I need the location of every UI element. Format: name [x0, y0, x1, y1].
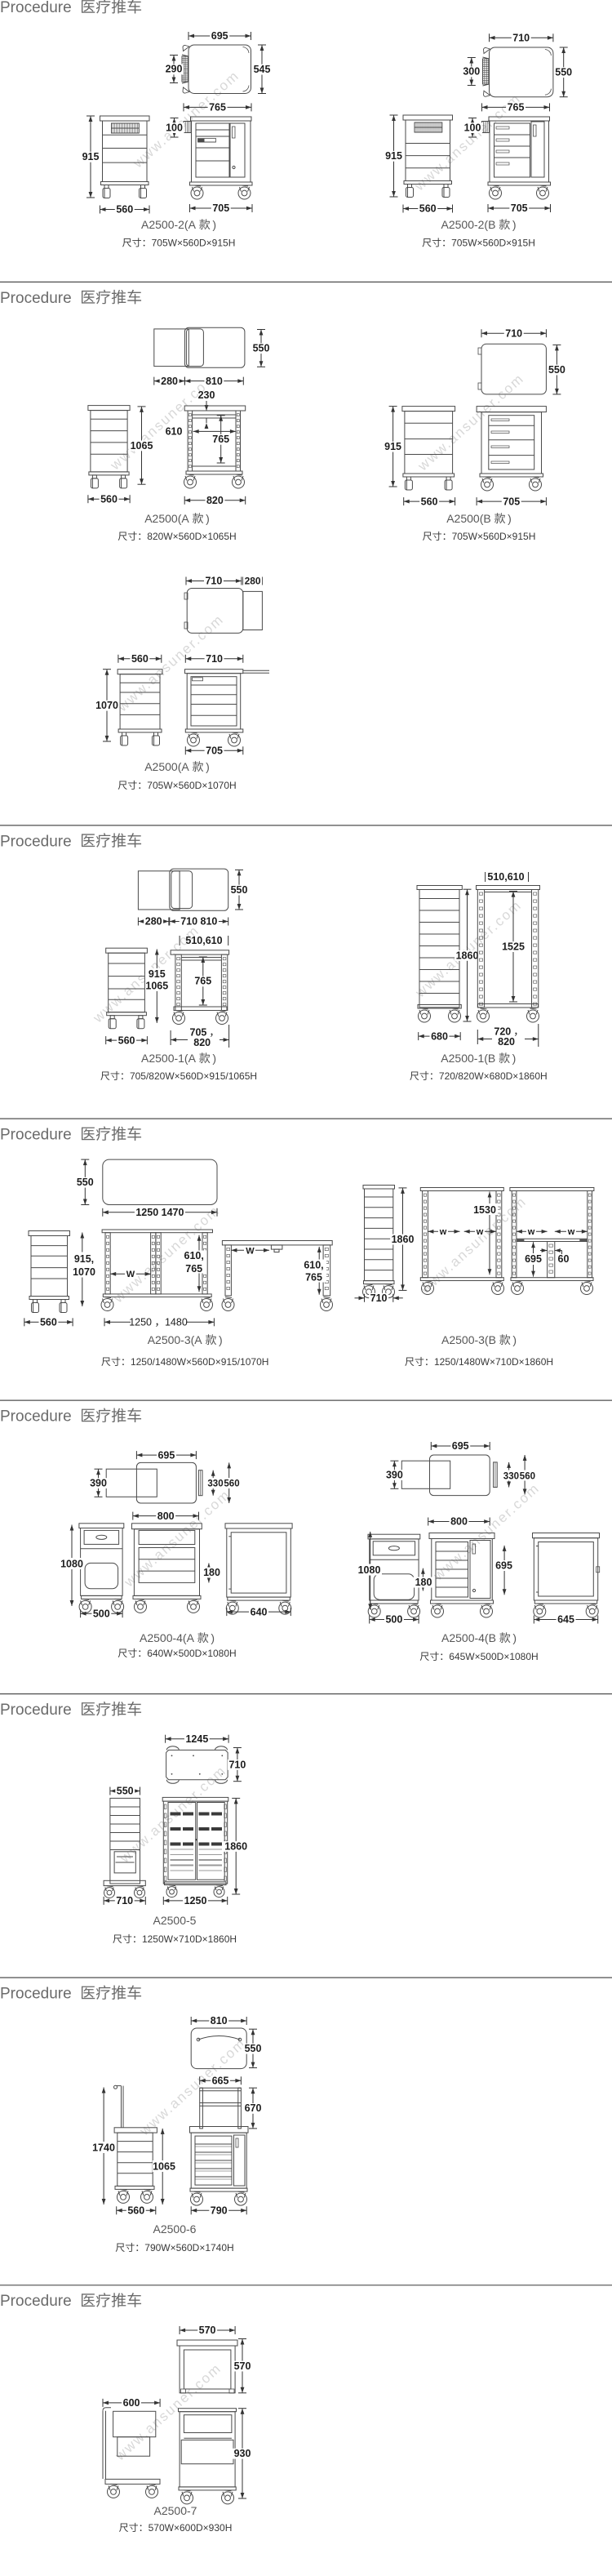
svg-text:915: 915: [385, 150, 402, 162]
svg-text:640W×500D×1080H: 640W×500D×1080H: [147, 1648, 236, 1659]
svg-text:610: 610: [166, 426, 183, 438]
svg-text:1070: 1070: [73, 1266, 95, 1278]
svg-text:695: 695: [495, 1560, 512, 1572]
svg-text:545: 545: [254, 64, 271, 75]
svg-text:710 810: 710 810: [180, 916, 217, 928]
svg-text:915: 915: [82, 151, 100, 162]
svg-text:705: 705: [206, 745, 223, 757]
svg-text:230: 230: [198, 389, 215, 401]
svg-text:765: 765: [305, 1272, 322, 1284]
svg-text:A2500-2(A: A2500-2(A: [141, 218, 197, 231]
svg-text:915: 915: [149, 968, 166, 980]
svg-text:A2500(A: A2500(A: [144, 760, 189, 773]
svg-text:710: 710: [370, 1292, 388, 1304]
svg-text:695: 695: [211, 30, 228, 42]
svg-text:280: 280: [245, 576, 261, 587]
svg-text:1065: 1065: [145, 980, 168, 991]
svg-text:550: 550: [555, 67, 572, 78]
svg-text:510,610: 510,610: [487, 871, 524, 883]
svg-text:560: 560: [421, 496, 438, 507]
svg-text:1250/1480W×710D×1860H: 1250/1480W×710D×1860H: [434, 1356, 553, 1368]
svg-text:): ): [211, 1631, 215, 1644]
svg-text:695: 695: [157, 1449, 175, 1461]
svg-text:www.ansuner.com: www.ansuner.com: [136, 2035, 249, 2139]
svg-text:1250 1470: 1250 1470: [135, 1207, 184, 1218]
svg-text:A2500(A: A2500(A: [144, 512, 189, 525]
svg-text:): ): [512, 1333, 517, 1346]
svg-text:720/820W×680D×1860H: 720/820W×680D×1860H: [439, 1070, 548, 1082]
svg-text:1070: 1070: [95, 700, 118, 711]
svg-text:705: 705: [503, 496, 520, 507]
svg-text:1740: 1740: [92, 2142, 115, 2154]
svg-text:1480: 1480: [165, 1317, 188, 1328]
svg-text:): ): [219, 1333, 223, 1346]
svg-text:645: 645: [557, 1614, 574, 1626]
svg-text:560: 560: [100, 493, 118, 505]
svg-text:705W×560D×915H: 705W×560D×915H: [452, 531, 536, 542]
svg-text:710: 710: [206, 653, 223, 665]
svg-text:www.ansuner.com: www.ansuner.com: [415, 371, 527, 474]
svg-text:820: 820: [193, 1037, 211, 1048]
svg-text:820W×560D×1065H: 820W×560D×1065H: [147, 531, 236, 542]
svg-text:705: 705: [511, 202, 528, 214]
svg-text:A2500-1(A: A2500-1(A: [141, 1052, 197, 1065]
svg-text:705: 705: [212, 202, 229, 214]
svg-text:670: 670: [245, 2102, 262, 2114]
svg-text:W: W: [246, 1247, 255, 1257]
svg-text:680: 680: [431, 1030, 448, 1042]
svg-text:280: 280: [161, 376, 178, 387]
svg-text:1860: 1860: [224, 1840, 247, 1852]
svg-text:610,: 610,: [304, 1260, 323, 1271]
svg-text:610,: 610,: [184, 1250, 204, 1261]
svg-text:560: 560: [118, 1034, 135, 1046]
svg-text:A2500-3(B: A2500-3(B: [441, 1333, 496, 1346]
svg-text:550: 550: [231, 884, 248, 896]
svg-text:550: 550: [253, 343, 270, 354]
svg-text:): ): [206, 512, 210, 525]
svg-text:A2500-6: A2500-6: [153, 2222, 197, 2236]
svg-text:710: 710: [505, 327, 522, 339]
svg-text:1080: 1080: [60, 1559, 83, 1570]
svg-text:550: 550: [77, 1177, 94, 1188]
svg-text:930: 930: [234, 2448, 251, 2459]
svg-text:810: 810: [211, 2015, 228, 2027]
svg-text:): ): [212, 1052, 216, 1065]
svg-text:570W×600D×930H: 570W×600D×930H: [149, 2522, 233, 2534]
svg-text:A2500-1(B: A2500-1(B: [441, 1052, 495, 1065]
svg-text:): ): [508, 512, 512, 525]
svg-text:790W×560D×1740H: 790W×560D×1740H: [144, 2242, 233, 2253]
svg-text:710: 710: [228, 1759, 246, 1770]
svg-text:800: 800: [157, 1510, 175, 1522]
svg-text:645W×500D×1080H: 645W×500D×1080H: [449, 1651, 538, 1662]
svg-text:915: 915: [384, 441, 401, 452]
svg-text:550: 550: [548, 364, 565, 376]
svg-text:Procedure: Procedure: [0, 1986, 72, 2003]
svg-text:1250W×710D×1860H: 1250W×710D×1860H: [142, 1933, 237, 1945]
svg-text:570: 570: [199, 2325, 216, 2336]
svg-text:800: 800: [450, 1516, 468, 1528]
svg-text:1525: 1525: [502, 941, 525, 953]
svg-text:): ): [206, 760, 210, 773]
svg-text:A2500-2(B: A2500-2(B: [441, 218, 496, 231]
svg-text:705W×560D×1070H: 705W×560D×1070H: [147, 780, 236, 791]
svg-text:820: 820: [206, 495, 224, 506]
svg-text:500: 500: [93, 1608, 110, 1619]
svg-text:500: 500: [385, 1614, 402, 1626]
svg-text:765: 765: [209, 102, 226, 113]
svg-text:1065: 1065: [153, 2161, 175, 2173]
svg-text:1250: 1250: [184, 1895, 207, 1906]
svg-text:330: 330: [503, 1472, 519, 1482]
svg-text:1245: 1245: [185, 1733, 208, 1745]
svg-text:560: 560: [116, 204, 133, 216]
svg-text:810: 810: [206, 376, 223, 387]
svg-text:695: 695: [452, 1440, 469, 1452]
svg-text:765: 765: [194, 976, 211, 987]
svg-text:60: 60: [558, 1253, 570, 1265]
svg-text:390: 390: [386, 1470, 403, 1481]
svg-text:560: 560: [40, 1317, 57, 1328]
svg-text:705/820W×560D×915/1065H: 705/820W×560D×915/1065H: [130, 1070, 257, 1082]
svg-text:705W×560D×915H: 705W×560D×915H: [451, 238, 535, 249]
svg-text:1080: 1080: [358, 1564, 381, 1576]
svg-text:A2500-5: A2500-5: [153, 1914, 197, 1927]
svg-text:Procedure: Procedure: [0, 1127, 72, 1144]
svg-text:w: w: [476, 1227, 484, 1237]
svg-text:w: w: [439, 1227, 447, 1237]
svg-text:A2500-4(B: A2500-4(B: [441, 1631, 496, 1644]
svg-text:765: 765: [212, 434, 229, 445]
svg-text:A2500-7: A2500-7: [154, 2504, 197, 2517]
svg-text:710: 710: [116, 1895, 133, 1906]
svg-text:180: 180: [203, 1567, 220, 1578]
svg-text:): ): [512, 1052, 517, 1065]
svg-text:W: W: [126, 1270, 135, 1279]
svg-text:710: 710: [512, 33, 530, 44]
svg-text:280: 280: [145, 916, 162, 928]
svg-text:www.ansuner.com: www.ansuner.com: [112, 2360, 224, 2464]
svg-text:550: 550: [245, 2043, 262, 2054]
svg-text:Procedure: Procedure: [0, 1408, 72, 1426]
svg-text:560: 560: [520, 1472, 535, 1482]
svg-text:Procedure: Procedure: [0, 0, 72, 16]
svg-text:100: 100: [464, 122, 481, 133]
svg-text:550: 550: [117, 1786, 134, 1797]
svg-text:): ): [512, 218, 517, 231]
svg-text:570: 570: [234, 2360, 251, 2372]
svg-text:Procedure: Procedure: [0, 2293, 72, 2310]
svg-text:560: 560: [131, 653, 149, 665]
svg-text:560: 560: [127, 2205, 144, 2217]
svg-text:1250/1480W×560D×915/1070H: 1250/1480W×560D×915/1070H: [131, 1356, 268, 1368]
svg-text:560: 560: [419, 203, 437, 215]
svg-text:915,: 915,: [74, 1253, 94, 1265]
svg-text:330: 330: [207, 1479, 223, 1489]
svg-text:Procedure: Procedure: [0, 833, 72, 850]
svg-text:710: 710: [205, 576, 222, 587]
svg-text:695: 695: [525, 1253, 542, 1265]
svg-text:A2500-3(A: A2500-3(A: [148, 1333, 203, 1346]
svg-text:640: 640: [251, 1606, 268, 1617]
svg-text:A2500(B: A2500(B: [446, 512, 490, 525]
svg-text:Procedure: Procedure: [0, 290, 72, 307]
svg-text:765: 765: [508, 102, 525, 113]
svg-text:765: 765: [185, 1263, 202, 1275]
svg-text:w: w: [527, 1227, 535, 1237]
svg-text:w: w: [567, 1227, 575, 1237]
svg-text:1065: 1065: [131, 440, 153, 452]
svg-text:510,610: 510,610: [185, 935, 222, 946]
svg-text:1860: 1860: [392, 1234, 415, 1245]
svg-text:1250: 1250: [129, 1317, 152, 1328]
svg-text:665: 665: [212, 2075, 229, 2087]
svg-text:Procedure: Procedure: [0, 1702, 72, 1719]
svg-text:600: 600: [123, 2397, 140, 2409]
svg-text:A2500-4(A: A2500-4(A: [140, 1631, 195, 1644]
svg-text:390: 390: [90, 1478, 107, 1489]
svg-text:1530: 1530: [473, 1204, 496, 1216]
svg-text:790: 790: [211, 2205, 228, 2217]
svg-text:): ): [512, 1631, 517, 1644]
svg-text:100: 100: [166, 122, 183, 133]
svg-text:180: 180: [415, 1577, 432, 1588]
svg-text:300: 300: [463, 66, 480, 78]
svg-text:290: 290: [166, 64, 183, 75]
svg-text:820: 820: [498, 1036, 515, 1048]
svg-text:560: 560: [224, 1479, 239, 1489]
svg-text:705W×560D×915H: 705W×560D×915H: [152, 238, 236, 249]
svg-text:1860: 1860: [456, 950, 479, 961]
svg-text:): ): [212, 218, 216, 231]
